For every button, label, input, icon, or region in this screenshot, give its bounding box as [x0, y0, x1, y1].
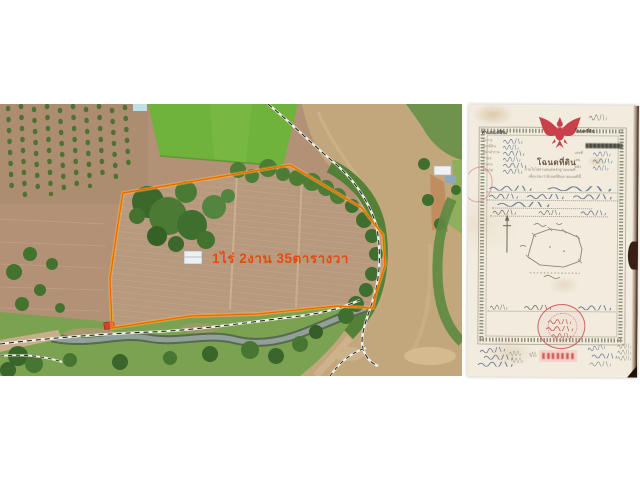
house-blue-roof [445, 176, 456, 183]
field-survey-page: หน้าสำรวจ [483, 151, 500, 155]
damage-spot [628, 242, 638, 270]
aerial-photo: 1ไร่ 2งาน 35ตารางวา [0, 104, 462, 376]
sand-bar [404, 347, 456, 365]
serial-number-stamp [539, 350, 577, 362]
position-header: ตำแหน่งที่ดิน [482, 131, 507, 136]
listing-composite: 1ไร่ 2งาน 35ตารางวา ตำแห [0, 0, 640, 480]
paddy-stripe [210, 104, 252, 162]
aerial-photo-scene: 1ไร่ 2งาน 35ตารางวา [0, 104, 462, 376]
field-land-no: เลขที่ดิน [483, 145, 496, 149]
corner-fold [627, 366, 637, 378]
field-number: เลขที่ [575, 151, 583, 155]
title-deed-document: ตำแหน่งที่ดิน ระวาง เลขที่ดิน หน้าสำรวจ … [467, 104, 639, 377]
north-arrow-icon [501, 215, 513, 255]
pencil-note [589, 114, 607, 120]
area-label: 1ไร่ 2งาน 35ตารางวา [212, 250, 349, 266]
house-white-roof [434, 166, 451, 175]
stamp-digits [542, 353, 574, 359]
field-rawang: ระวาง [483, 139, 493, 143]
shed-roof-top [133, 104, 147, 111]
redacted-deed-number [586, 143, 623, 148]
deed-subtitle-1: ด้วยใบไต่สวนหมุดหลักฐานแผนที่ [524, 168, 614, 172]
parcel-sketch [520, 223, 588, 281]
deed-subtitle-2: เพื่อแสดงว่ามีเขตที่ดินตามแผนที่นี้ [528, 175, 618, 179]
deed-header: โฉนดที่ดิน [575, 129, 595, 134]
